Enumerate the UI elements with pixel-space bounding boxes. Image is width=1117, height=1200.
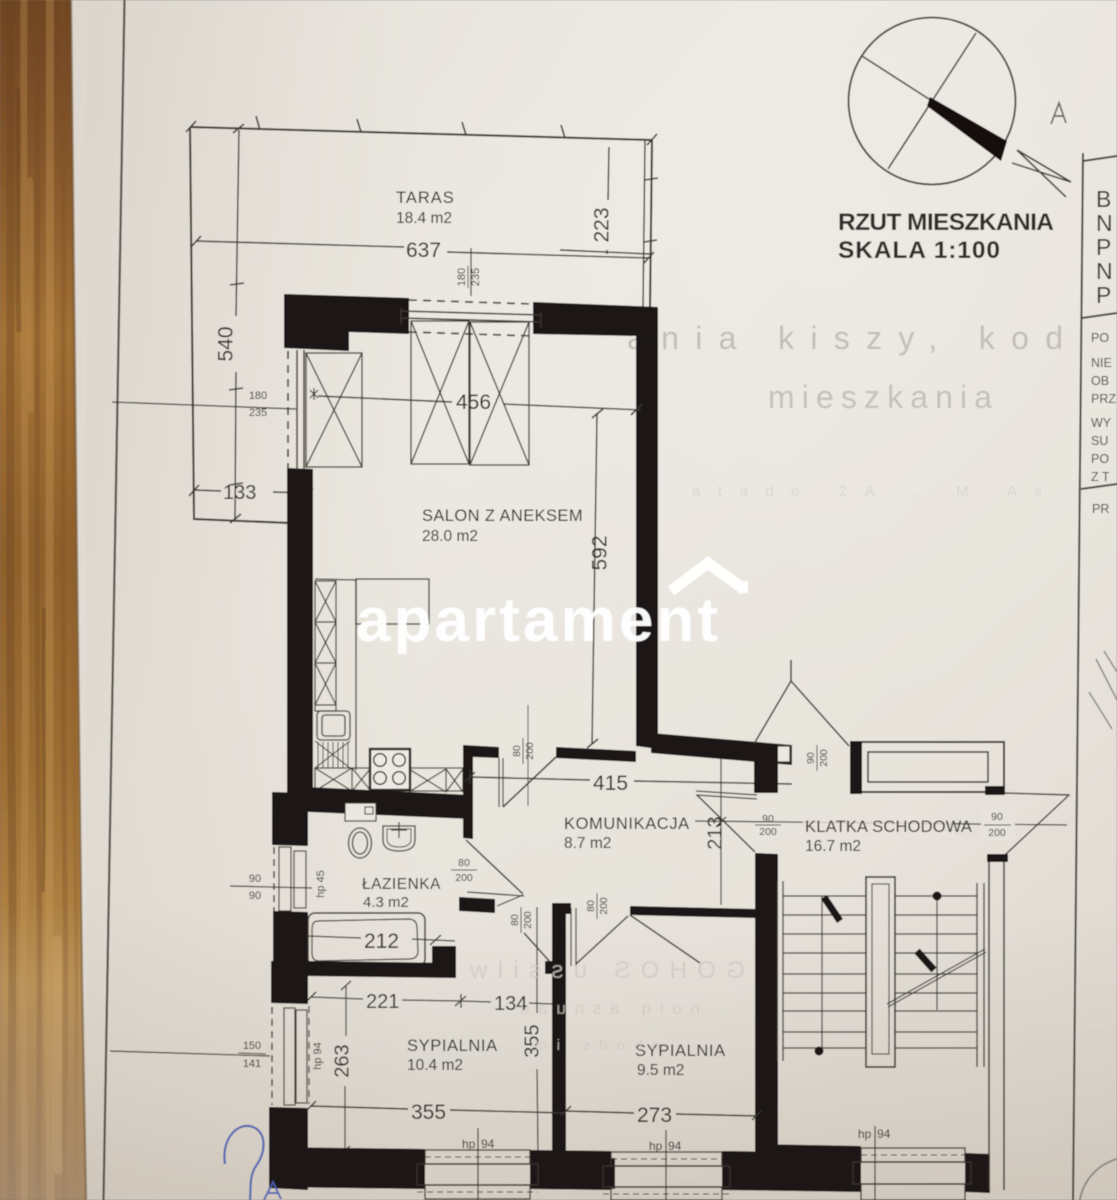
- svg-text:200: 200: [598, 897, 610, 915]
- svg-text:90: 90: [991, 811, 1003, 823]
- svg-text:OB: OB: [1091, 374, 1109, 388]
- svg-text:KOMUNIKACJA: KOMUNIKACJA: [564, 815, 690, 833]
- svg-text:94: 94: [877, 1127, 891, 1141]
- svg-text:PO: PO: [1091, 331, 1109, 345]
- svg-text:SYPIALNIA: SYPIALNIA: [407, 1037, 498, 1055]
- svg-text:150: 150: [243, 1040, 261, 1052]
- svg-text:90: 90: [805, 752, 817, 764]
- svg-text:PO: PO: [1091, 452, 1109, 466]
- svg-text:133: 133: [223, 482, 256, 504]
- svg-text:80: 80: [585, 900, 597, 912]
- svg-text:263: 263: [331, 1044, 353, 1077]
- svg-text:B: B: [1096, 186, 1111, 212]
- svg-text:16.7 m2: 16.7 m2: [805, 838, 861, 855]
- svg-text:PRZ: PRZ: [1091, 392, 1116, 406]
- svg-text:592: 592: [589, 535, 612, 570]
- svg-text:N: N: [1096, 210, 1113, 236]
- svg-text:NIE: NIE: [1091, 356, 1112, 370]
- svg-text:10.4 m2: 10.4 m2: [407, 1057, 463, 1074]
- svg-text:637: 637: [406, 239, 441, 262]
- svg-text:80: 80: [509, 914, 521, 926]
- svg-text:141: 141: [243, 1058, 261, 1070]
- svg-text:SU: SU: [1091, 434, 1108, 448]
- svg-text:456: 456: [456, 391, 491, 414]
- svg-text:273: 273: [637, 1104, 672, 1127]
- svg-text:90: 90: [762, 813, 774, 825]
- svg-text:200: 200: [988, 827, 1006, 839]
- svg-text:18.4 m2: 18.4 m2: [396, 210, 452, 227]
- svg-text:90: 90: [249, 890, 261, 902]
- svg-text:200: 200: [818, 749, 830, 767]
- svg-text:P: P: [1096, 234, 1111, 260]
- svg-text:hp: hp: [649, 1139, 663, 1153]
- svg-text:SYPIALNIA: SYPIALNIA: [635, 1042, 726, 1060]
- svg-text:PR: PR: [1092, 502, 1109, 516]
- svg-text:180: 180: [456, 268, 468, 286]
- svg-text:200: 200: [759, 826, 777, 838]
- svg-text:90: 90: [249, 873, 261, 885]
- svg-text:223: 223: [591, 207, 614, 242]
- svg-text:apartament: apartament: [356, 586, 718, 655]
- svg-text:200: 200: [455, 872, 473, 884]
- svg-text:ŁAZIENKA: ŁAZIENKA: [362, 876, 441, 893]
- svg-text:noiq asnuau: noiq asnuau: [520, 999, 700, 1018]
- svg-text:KLATKA SCHODOWA: KLATKA SCHODOWA: [805, 818, 972, 836]
- svg-text:9.5 m2: 9.5 m2: [637, 1062, 684, 1079]
- svg-text:94: 94: [481, 1137, 495, 1151]
- svg-text:212: 212: [364, 930, 399, 953]
- svg-text:94: 94: [668, 1139, 682, 1153]
- svg-text:WY: WY: [1091, 416, 1112, 430]
- svg-text:540: 540: [215, 326, 238, 361]
- svg-text:SALON Z ANEKSEM: SALON Z ANEKSEM: [422, 507, 583, 525]
- svg-text:8.7 m2: 8.7 m2: [564, 835, 611, 852]
- svg-text:TARAS: TARAS: [396, 189, 455, 207]
- svg-text:415: 415: [593, 772, 628, 795]
- svg-text:235: 235: [249, 407, 267, 419]
- svg-text:Z T: Z T: [1091, 470, 1110, 484]
- svg-text:N: N: [1096, 258, 1113, 284]
- svg-text:221: 221: [366, 991, 399, 1013]
- svg-text:hp: hp: [462, 1137, 476, 1151]
- svg-text:hp: hp: [858, 1127, 872, 1141]
- svg-text:235: 235: [470, 268, 482, 286]
- svg-text:hp 45: hp 45: [315, 870, 327, 898]
- svg-text:180: 180: [249, 390, 267, 402]
- svg-text:4.3 m2: 4.3 m2: [363, 894, 409, 911]
- svg-text:200: 200: [524, 742, 536, 760]
- svg-text:hp 94: hp 94: [312, 1042, 324, 1070]
- svg-text:atado 2A . M As: atado 2A . M As: [692, 483, 1042, 500]
- svg-text:80: 80: [511, 745, 523, 757]
- svg-text:28.0 m2: 28.0 m2: [422, 528, 478, 545]
- svg-text:200: 200: [522, 911, 534, 929]
- svg-text:P: P: [1096, 282, 1111, 308]
- svg-text:RZUT MIESZKANIA: RZUT MIESZKANIA: [838, 209, 1054, 236]
- svg-text:355: 355: [411, 1101, 446, 1124]
- svg-text:80: 80: [458, 857, 470, 869]
- svg-text:SKALA 1:100: SKALA 1:100: [838, 237, 1000, 264]
